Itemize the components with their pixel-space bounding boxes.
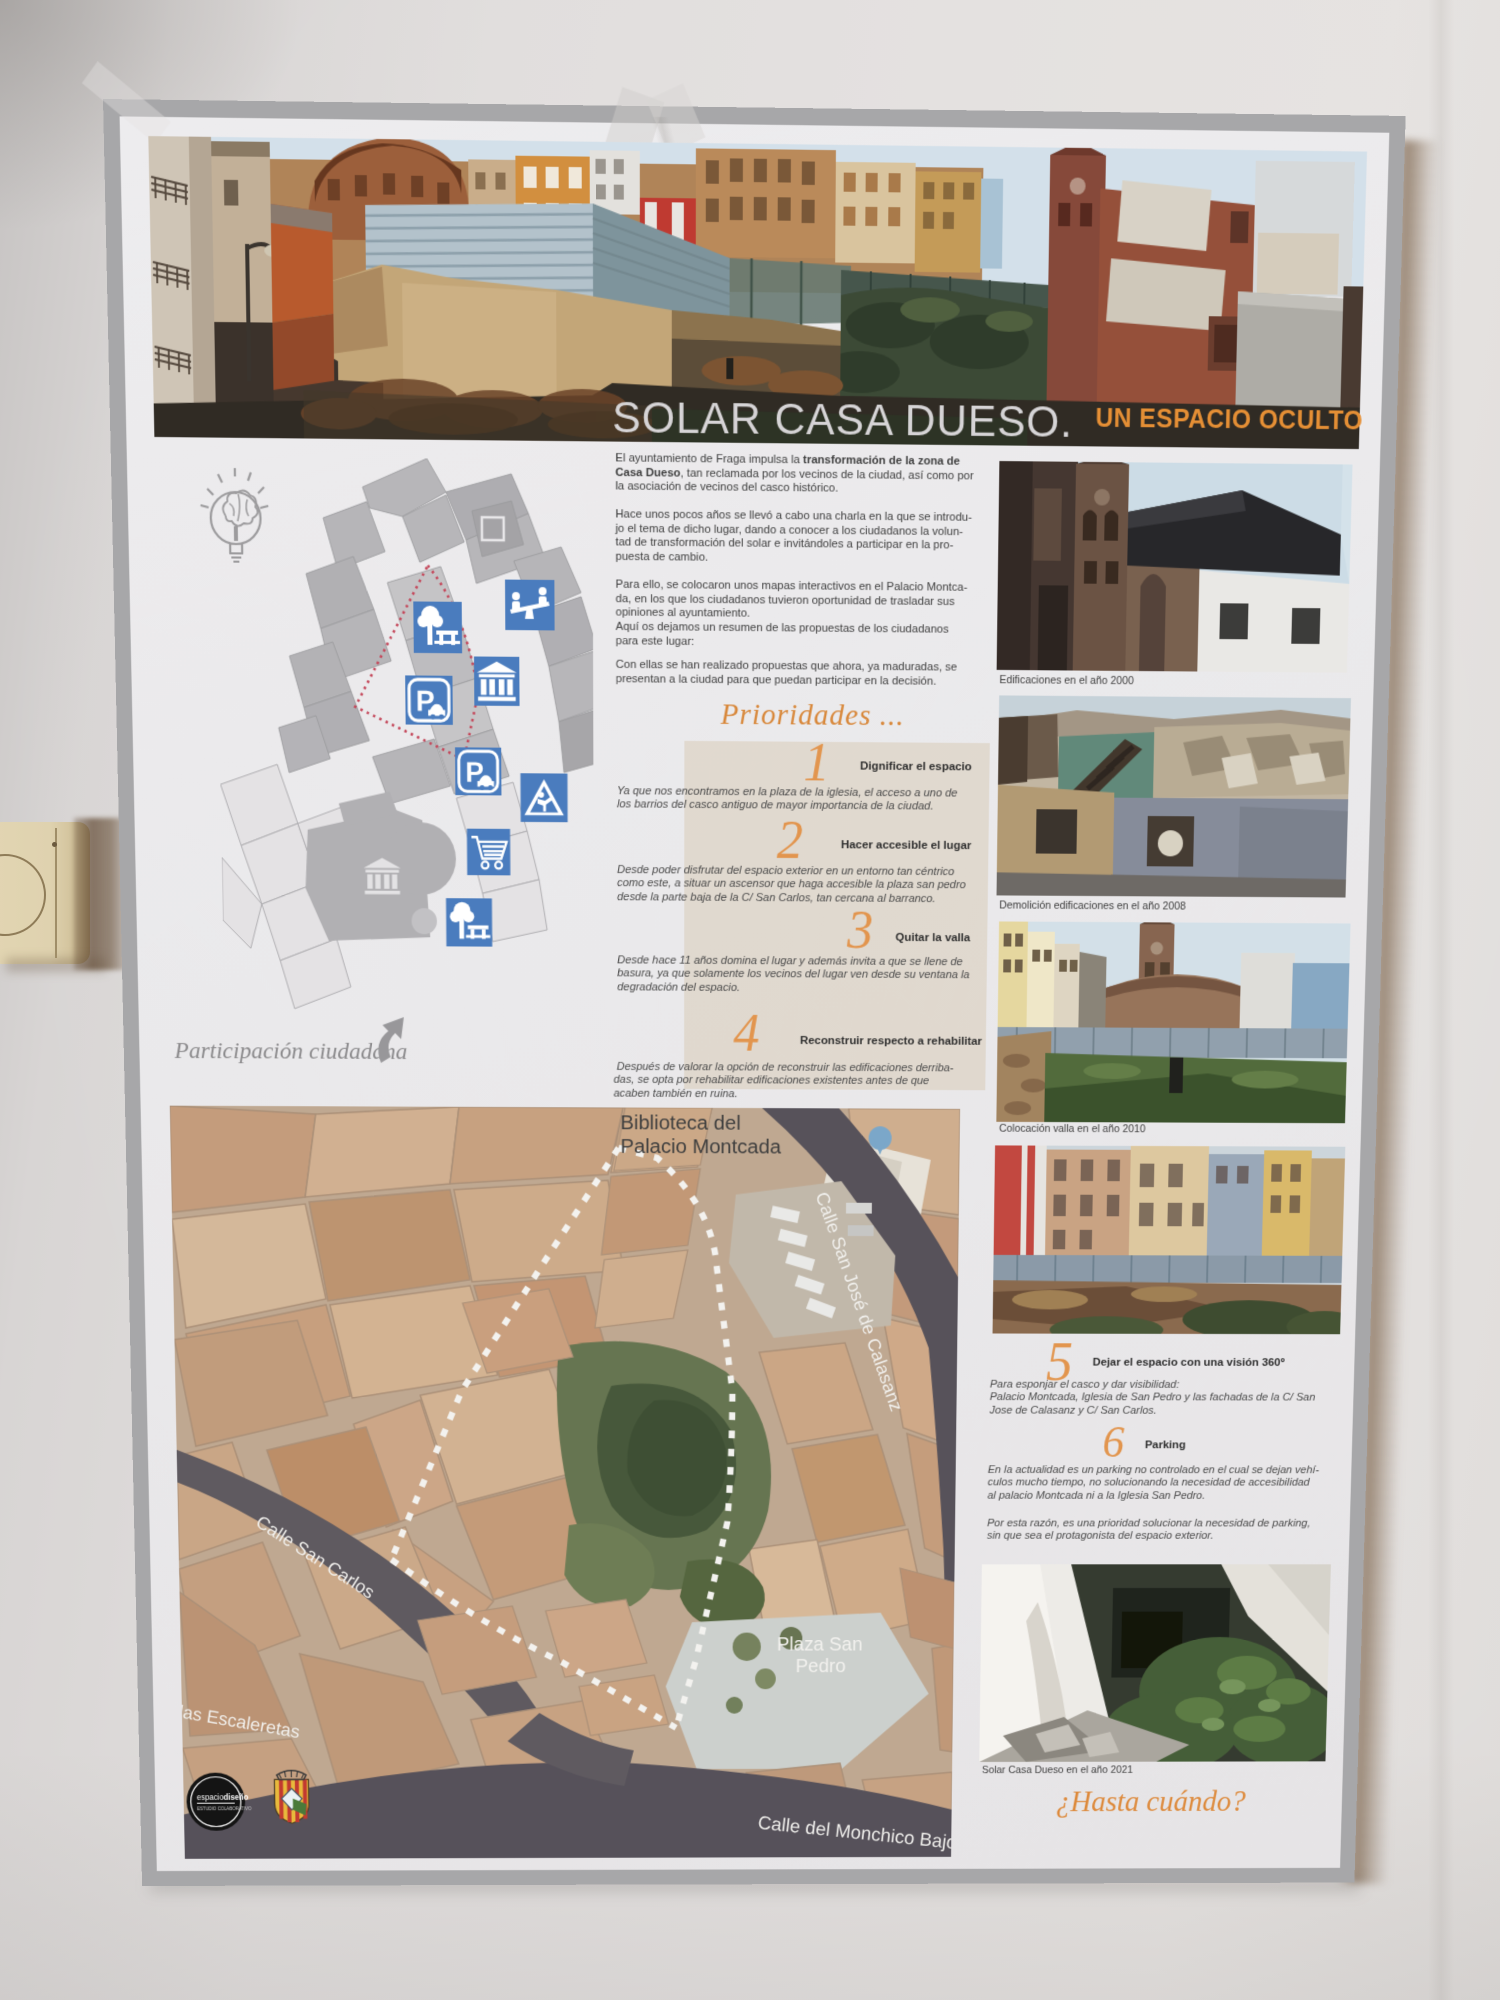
svg-text:ESTUDIO COLABORATIVO: ESTUDIO COLABORATIVO bbox=[197, 1807, 252, 1812]
svg-text:Plaza San: Plaza San bbox=[777, 1634, 863, 1655]
svg-text:Biblioteca del: Biblioteca del bbox=[620, 1110, 740, 1134]
svg-text:espaciodiseño: espaciodiseño bbox=[197, 1793, 249, 1802]
svg-text:Palacio Montcada: Palacio Montcada bbox=[620, 1134, 781, 1158]
svg-text:Pedro: Pedro bbox=[796, 1656, 846, 1677]
